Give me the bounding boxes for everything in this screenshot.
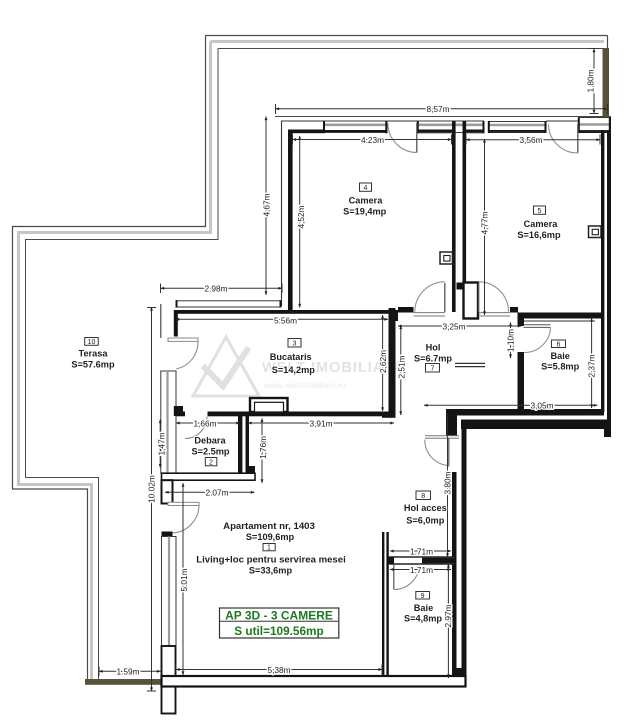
svg-text:6: 6 bbox=[557, 341, 561, 348]
svg-text:10: 10 bbox=[88, 339, 96, 346]
svg-text:Terasa: Terasa bbox=[79, 349, 109, 359]
svg-text:Hol acces: Hol acces bbox=[404, 503, 447, 513]
svg-text:AP 3D - 3 CAMERE: AP 3D - 3 CAMERE bbox=[225, 608, 333, 622]
svg-text:2.07m: 2.07m bbox=[205, 488, 228, 498]
svg-text:S=16,6mp: S=16,6mp bbox=[517, 230, 561, 240]
svg-text:Hol: Hol bbox=[426, 343, 441, 353]
svg-text:S=19,4mp: S=19,4mp bbox=[343, 207, 387, 217]
svg-text:4,77m: 4,77m bbox=[480, 211, 490, 234]
svg-text:Baie: Baie bbox=[414, 603, 433, 613]
svg-text:2: 2 bbox=[209, 459, 213, 466]
svg-text:Living+loc pentru servirea mes: Living+loc pentru servirea mesei bbox=[196, 555, 346, 566]
svg-text:Apartament nr, 1403: Apartament nr, 1403 bbox=[223, 521, 315, 532]
svg-text:S=6,0mp: S=6,0mp bbox=[406, 516, 444, 526]
svg-text:3,56m: 3,56m bbox=[519, 135, 542, 145]
svg-text:S=6.7mp: S=6.7mp bbox=[414, 353, 452, 363]
svg-text:3.80m: 3.80m bbox=[443, 471, 453, 494]
svg-text:2,37m: 2,37m bbox=[587, 354, 597, 377]
svg-text:2.97m: 2.97m bbox=[443, 604, 453, 627]
svg-text:S=5.8mp: S=5.8mp bbox=[541, 361, 579, 371]
svg-text:1,47m: 1,47m bbox=[157, 432, 167, 455]
svg-text:2,51m: 2,51m bbox=[397, 355, 407, 378]
svg-text:S=33,6mp: S=33,6mp bbox=[249, 565, 293, 575]
svg-text:7: 7 bbox=[431, 365, 435, 372]
svg-text:1,76m: 1,76m bbox=[258, 436, 268, 459]
svg-text:1.59m: 1.59m bbox=[116, 667, 139, 677]
svg-text:Debara: Debara bbox=[194, 435, 226, 445]
svg-text:S=57.6mp: S=57.6mp bbox=[71, 360, 115, 370]
svg-text:5.56m: 5.56m bbox=[274, 316, 297, 326]
svg-text:S util=109.56mp: S util=109.56mp bbox=[234, 624, 324, 638]
svg-text:S=2.5mp: S=2.5mp bbox=[191, 447, 229, 457]
svg-text:8,57m: 8,57m bbox=[426, 104, 449, 114]
svg-text:3: 3 bbox=[293, 340, 297, 347]
svg-text:4.23m: 4.23m bbox=[361, 135, 384, 145]
svg-text:2,62m: 2,62m bbox=[378, 350, 388, 373]
svg-text:4,67m: 4,67m bbox=[261, 193, 271, 216]
svg-text:1,66m: 1,66m bbox=[193, 418, 216, 428]
svg-text:Camera: Camera bbox=[349, 195, 384, 205]
svg-text:3,25m: 3,25m bbox=[442, 321, 465, 331]
svg-text:2.98m: 2.98m bbox=[204, 283, 227, 293]
svg-text:1.80m: 1.80m bbox=[586, 69, 596, 92]
svg-text:1.71m: 1.71m bbox=[410, 565, 433, 575]
svg-text:3,91m: 3,91m bbox=[309, 418, 332, 428]
svg-text:Camera: Camera bbox=[524, 219, 559, 229]
svg-text:10.02m: 10.02m bbox=[147, 475, 157, 503]
svg-text:S=4,8mp: S=4,8mp bbox=[404, 614, 442, 624]
svg-text:4,52m: 4,52m bbox=[296, 205, 306, 228]
svg-text:9: 9 bbox=[421, 593, 425, 600]
svg-text:S=14,2mp: S=14,2mp bbox=[272, 365, 316, 375]
svg-text:5: 5 bbox=[538, 208, 542, 215]
svg-text:1.71m: 1.71m bbox=[410, 546, 433, 556]
svg-text:1,10m: 1,10m bbox=[506, 329, 516, 352]
svg-text:Bucataris: Bucataris bbox=[270, 352, 312, 362]
svg-text:4: 4 bbox=[364, 185, 368, 192]
svg-text:1: 1 bbox=[267, 545, 271, 552]
svg-text:8: 8 bbox=[421, 493, 425, 500]
svg-text:S=109,6mp: S=109,6mp bbox=[246, 532, 295, 542]
svg-text:5.01m: 5.01m bbox=[179, 568, 189, 591]
svg-text:5,38m: 5,38m bbox=[267, 665, 290, 675]
svg-text:3,05m: 3,05m bbox=[530, 401, 553, 411]
svg-text:Baie: Baie bbox=[550, 351, 569, 361]
svg-text:www.weltimobiliare.ro: www.weltimobiliare.ro bbox=[263, 380, 346, 390]
